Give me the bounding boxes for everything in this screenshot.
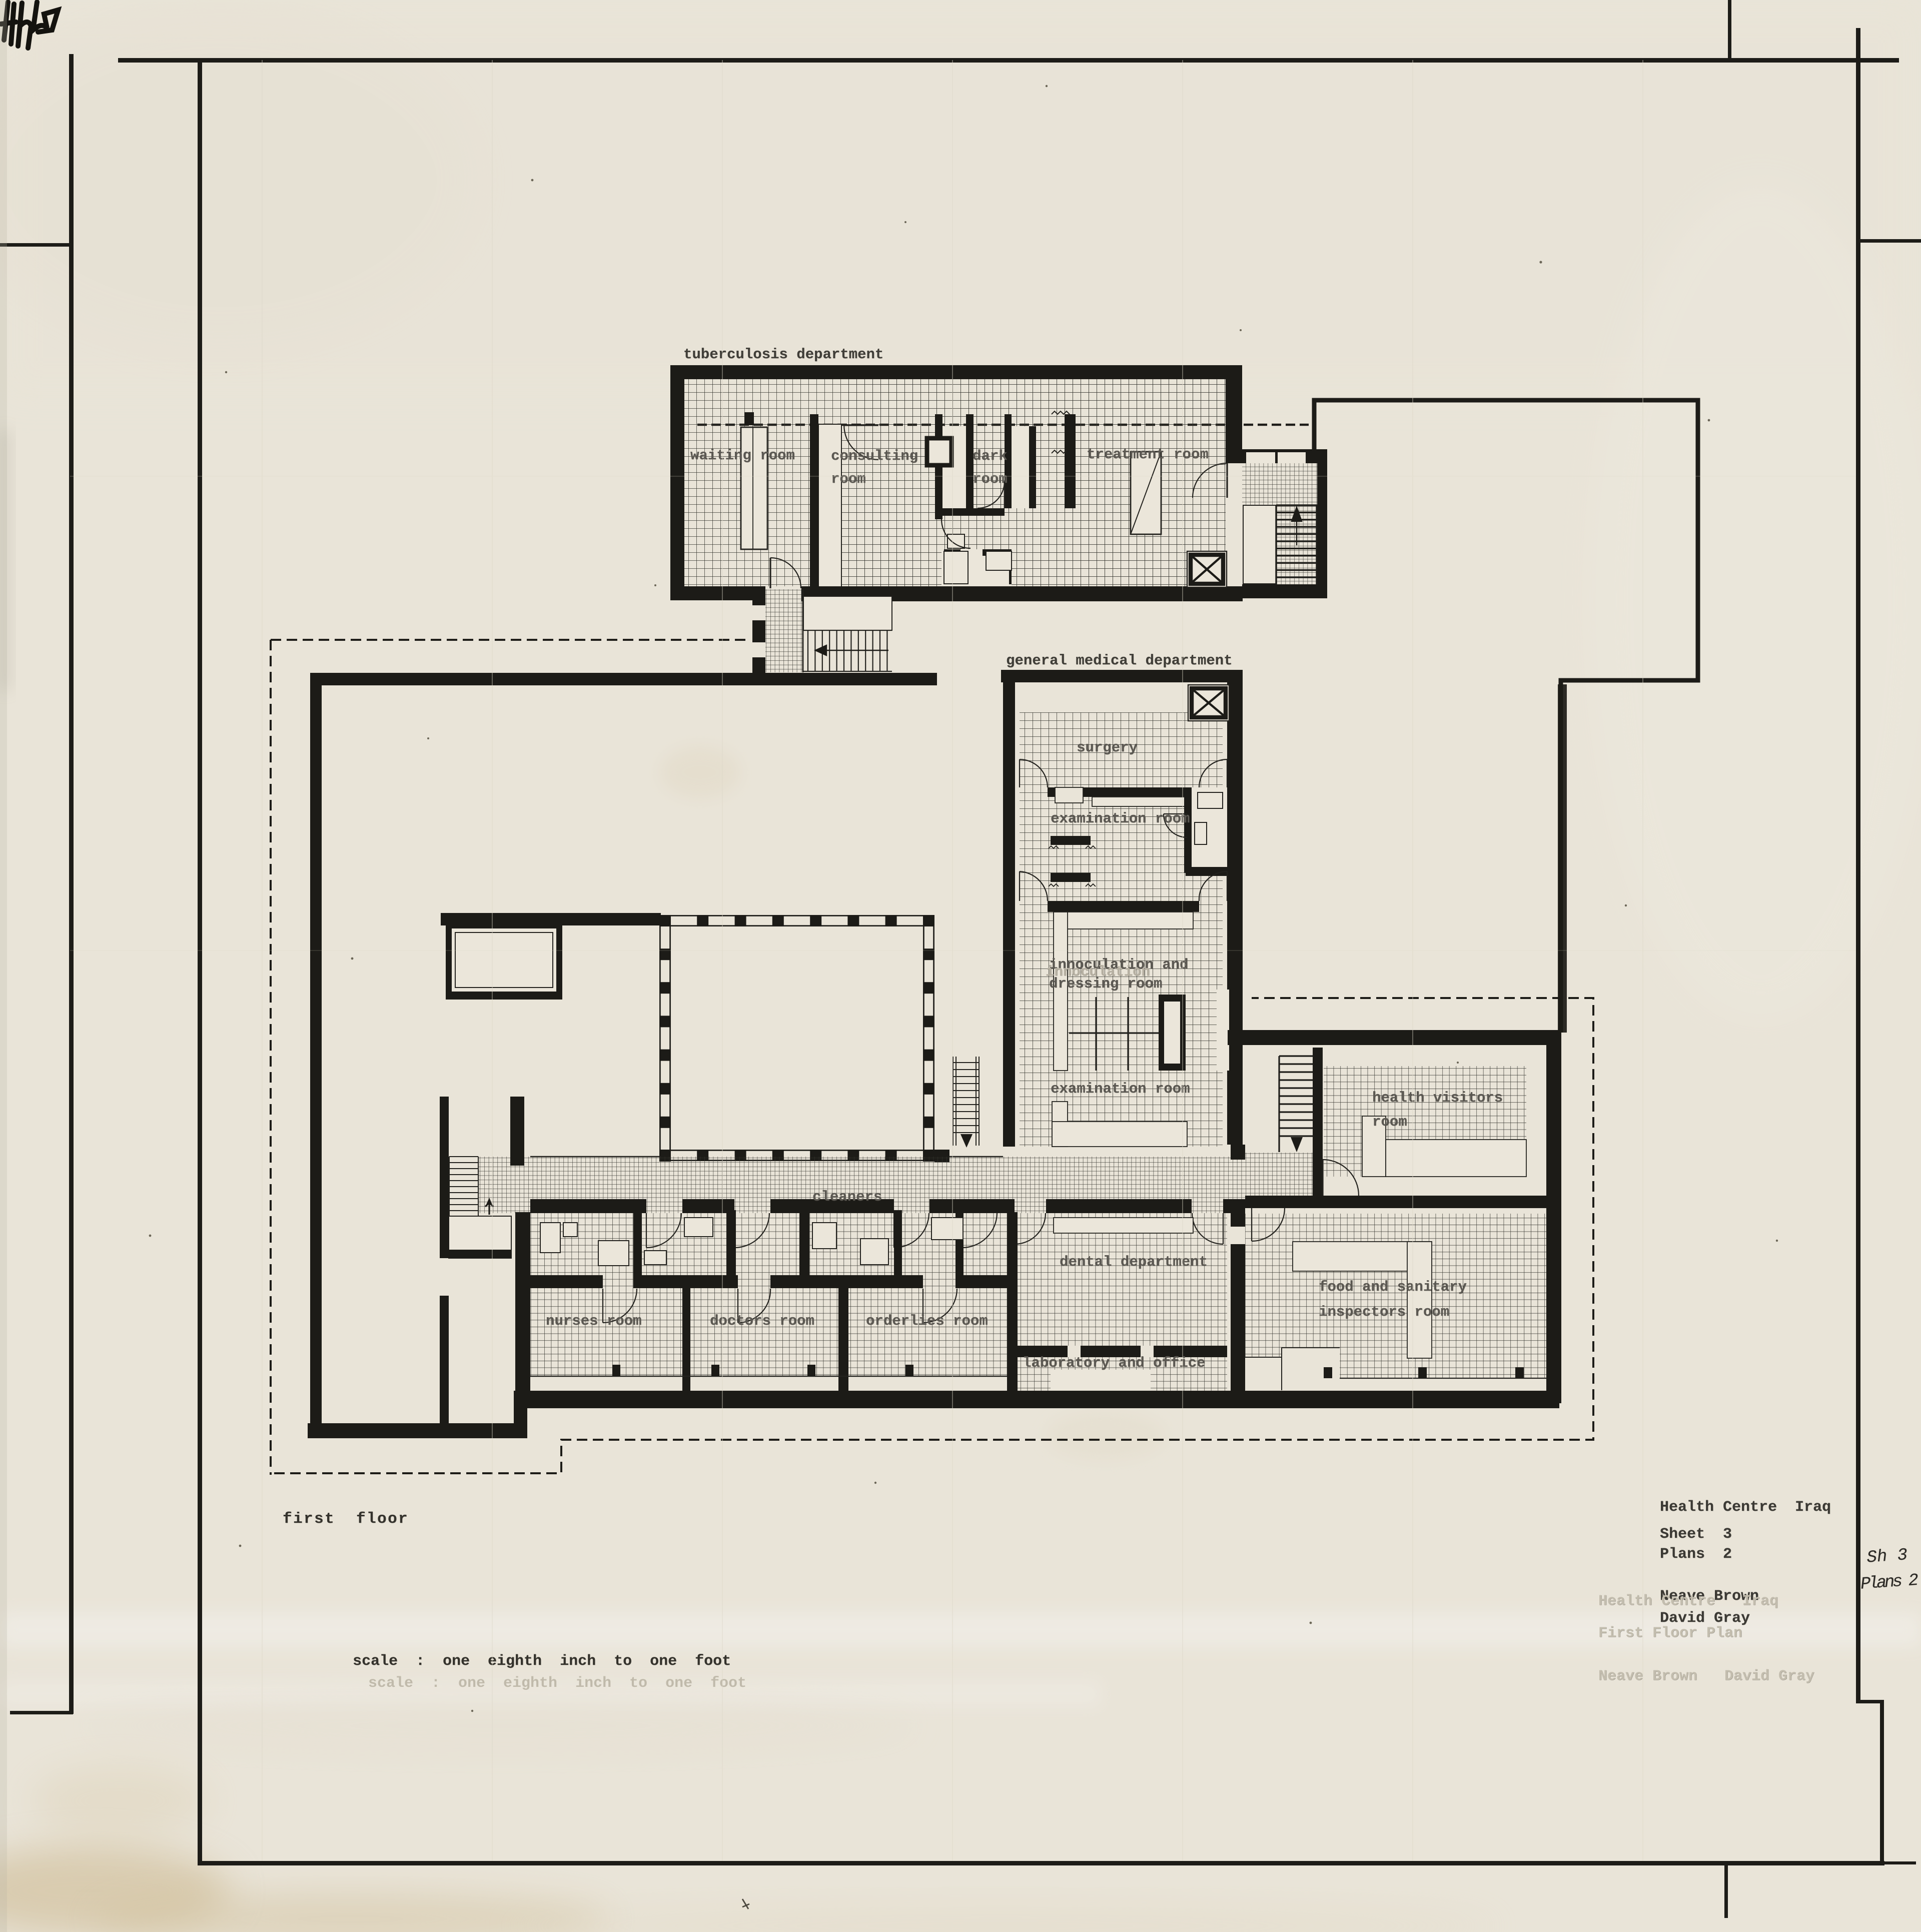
svg-text:Sh 3: Sh 3 xyxy=(1866,1546,1908,1568)
svg-text:waiting room: waiting room xyxy=(690,447,795,464)
svg-text:first floor: first floor xyxy=(283,1510,409,1528)
svg-text:food and sanitary: food and sanitary xyxy=(1319,1279,1467,1295)
svg-text:dark: dark xyxy=(973,448,1008,464)
svg-text:David Gray: David Gray xyxy=(1660,1610,1750,1627)
svg-text:doctors room: doctors room xyxy=(710,1313,814,1329)
svg-text:cleaners: cleaners xyxy=(812,1189,882,1205)
svg-text:room: room xyxy=(973,471,1008,487)
svg-text:Health Centre Iraq: Health Centre Iraq xyxy=(1660,1499,1831,1516)
svg-text:innoculation: innoculation xyxy=(1046,963,1150,980)
svg-text:Plans 2: Plans 2 xyxy=(1660,1546,1732,1563)
svg-text:examination room: examination room xyxy=(1051,1081,1190,1097)
svg-text:treatment room: treatment room xyxy=(1087,446,1209,463)
svg-text:orderlies room: orderlies room xyxy=(866,1313,988,1329)
svg-text:room: room xyxy=(1372,1114,1407,1130)
svg-text:Health Centre Iraq: Health Centre Iraq xyxy=(1598,1593,1778,1610)
svg-text:tuberculosis department: tuberculosis department xyxy=(683,346,883,363)
svg-text:scale : one eighth inch t: scale : one eighth inch to one foot xyxy=(368,1675,746,1692)
svg-text:First Floor Plan: First Floor Plan xyxy=(1598,1625,1742,1642)
svg-text:surgery: surgery xyxy=(1077,739,1138,756)
svg-text:nurses room: nurses room xyxy=(546,1313,641,1329)
svg-text:examination room: examination room xyxy=(1051,810,1190,827)
svg-text:dental department: dental department xyxy=(1060,1254,1208,1270)
svg-text:scale : one eighth inch t: scale : one eighth inch to one foot xyxy=(353,1653,731,1670)
svg-text:room: room xyxy=(831,471,866,487)
svg-text:Plans 2: Plans 2 xyxy=(1860,1571,1919,1594)
svg-text:consulting: consulting xyxy=(831,448,918,464)
svg-text:inspectors room: inspectors room xyxy=(1319,1304,1449,1320)
svg-text:Neave Brown David Gray: Neave Brown David Gray xyxy=(1598,1668,1814,1685)
svg-text:general medical department: general medical department xyxy=(1006,652,1232,669)
svg-text:health visitors: health visitors xyxy=(1372,1090,1503,1106)
svg-text:laboratory and office: laboratory and office xyxy=(1023,1355,1205,1371)
svg-text:Sheet 3: Sheet 3 xyxy=(1660,1526,1732,1543)
